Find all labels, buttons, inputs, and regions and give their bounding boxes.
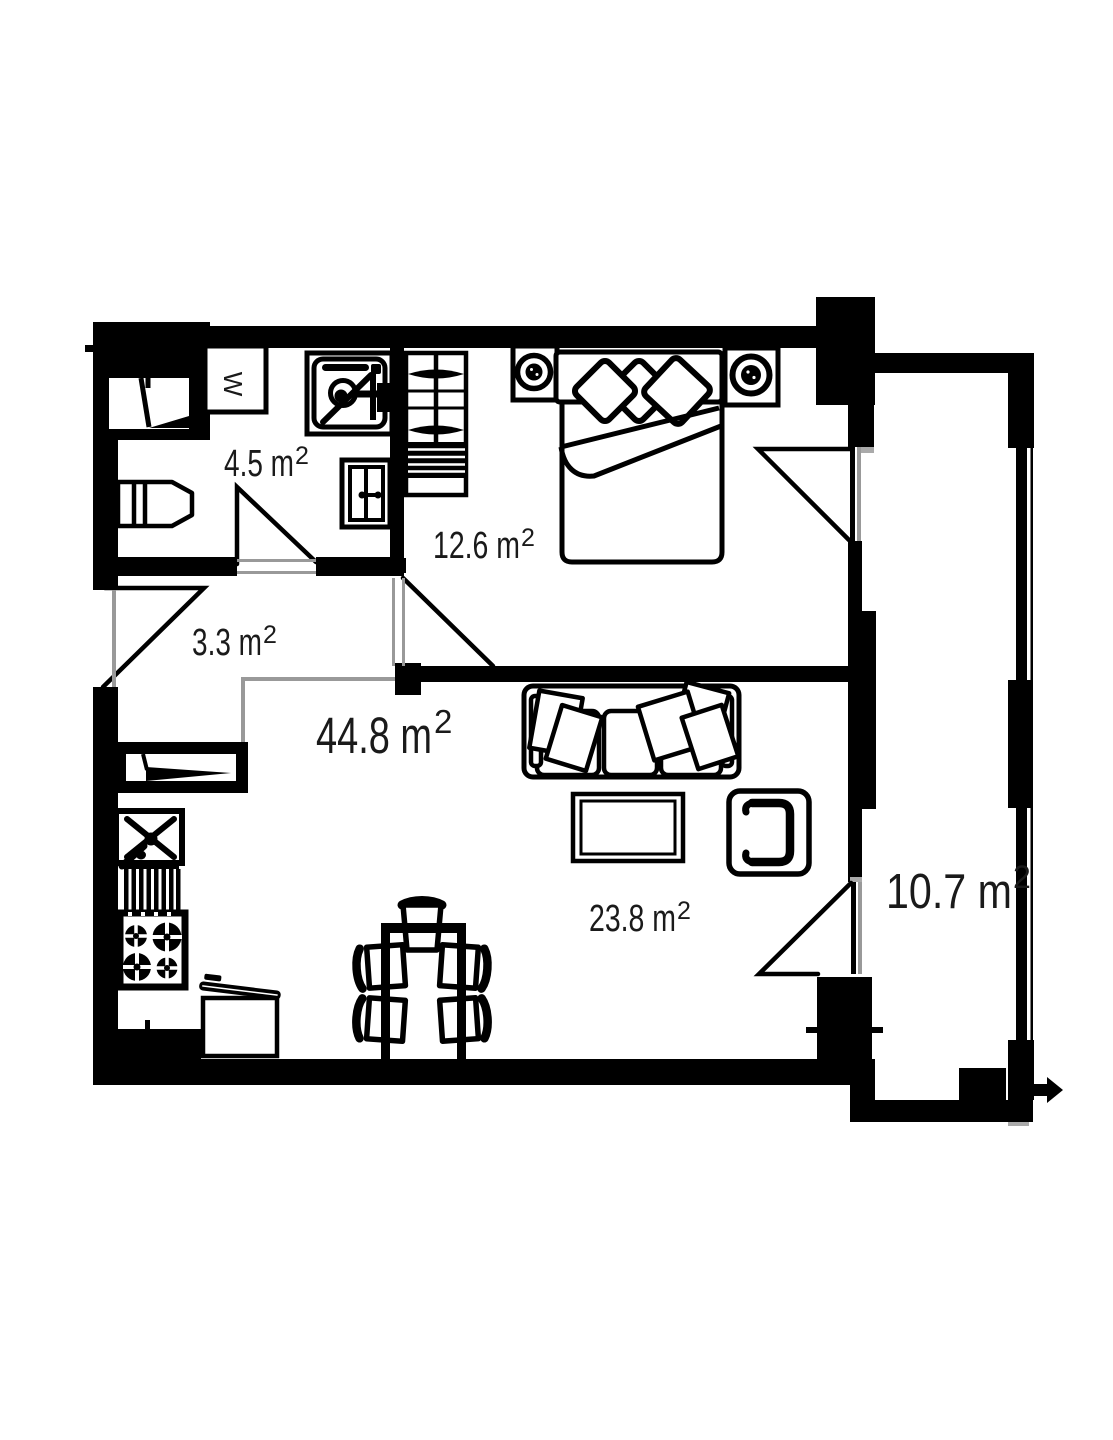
svg-text:10.7 m: 10.7 m — [886, 865, 1012, 919]
svg-text:2: 2 — [677, 897, 691, 925]
svg-text:W: W — [218, 372, 248, 397]
svg-text:12.6 m: 12.6 m — [433, 525, 520, 567]
svg-text:2: 2 — [263, 621, 277, 649]
svg-text:2: 2 — [521, 524, 535, 552]
svg-text:2: 2 — [434, 703, 452, 740]
svg-text:23.8 m: 23.8 m — [589, 898, 676, 940]
svg-text:2: 2 — [1013, 859, 1031, 895]
svg-text:3.3 m: 3.3 m — [192, 622, 262, 664]
svg-text:44.8 m: 44.8 m — [316, 707, 432, 764]
svg-text:4.5 m: 4.5 m — [224, 443, 294, 485]
svg-text:2: 2 — [295, 442, 309, 470]
